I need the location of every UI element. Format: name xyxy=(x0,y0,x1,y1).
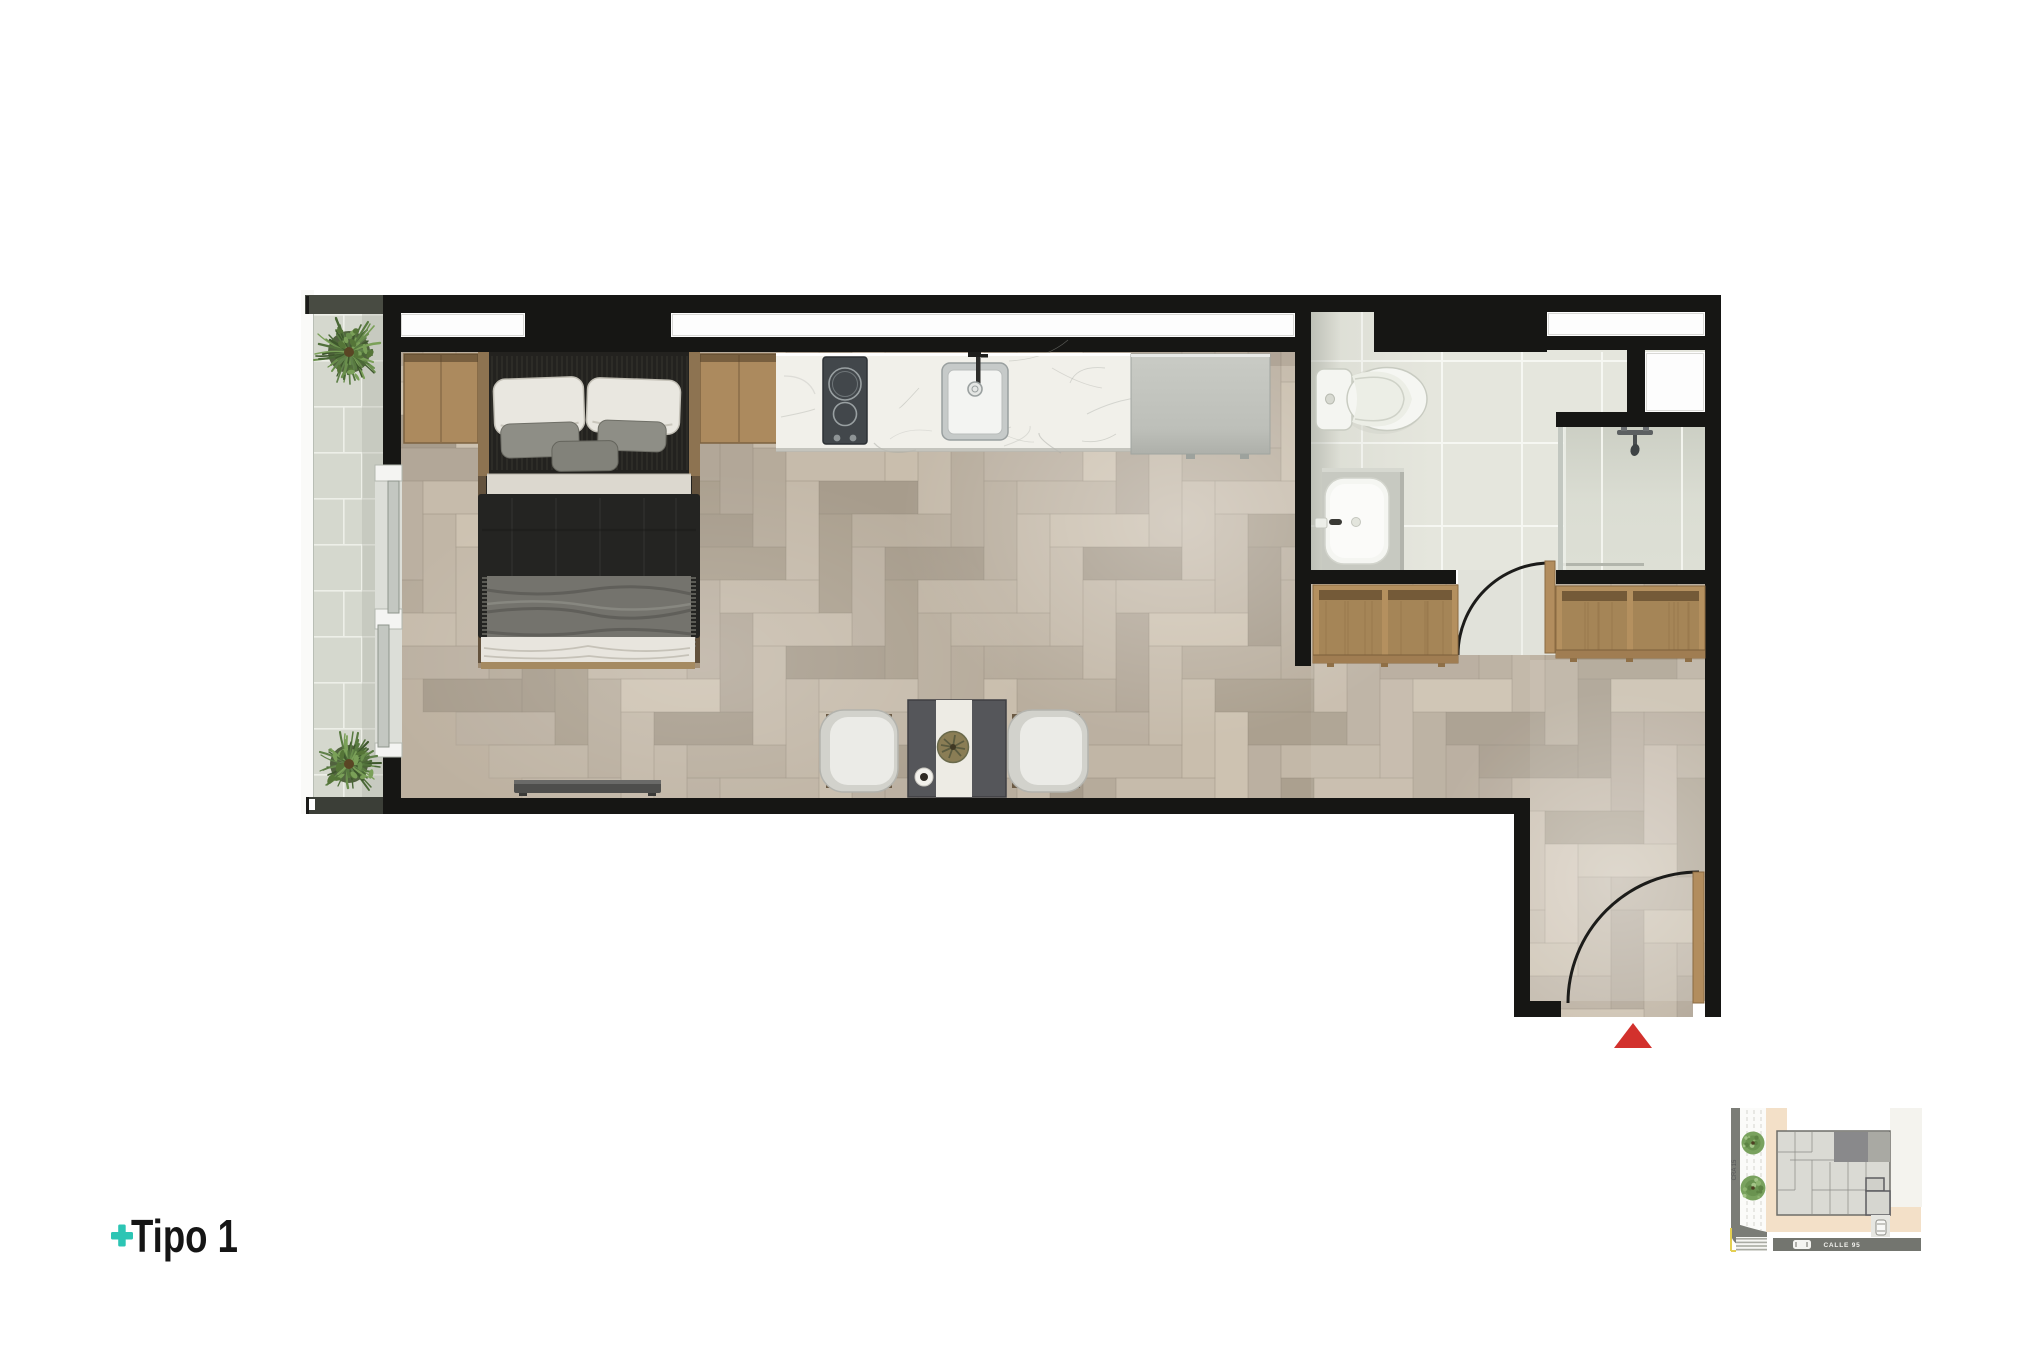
svg-text:CALLE 95: CALLE 95 xyxy=(1823,1242,1860,1249)
svg-text:Tipo 1: Tipo 1 xyxy=(131,1210,238,1262)
svg-text:CRA 15: CRA 15 xyxy=(1732,1159,1738,1180)
